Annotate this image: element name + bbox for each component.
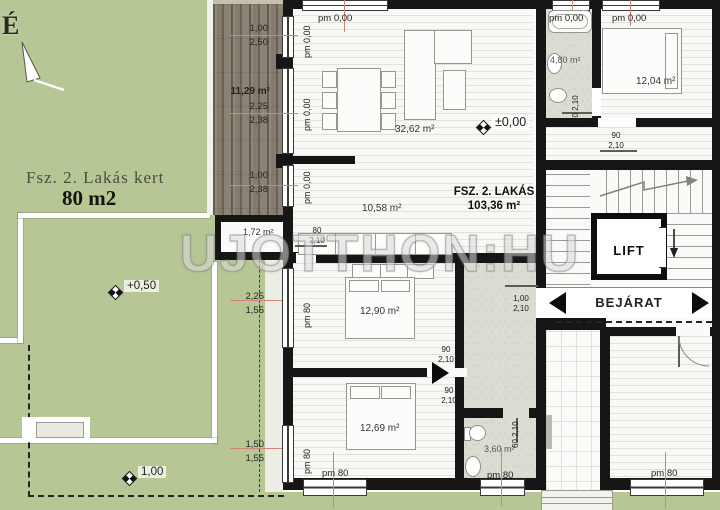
- door-opening: [536, 288, 546, 318]
- window: [282, 68, 294, 154]
- garden-fence: [18, 213, 210, 218]
- garden-planter: [22, 417, 90, 441]
- garden-level-lower: 1,00: [138, 466, 166, 478]
- window-sill-label: pm 80: [322, 468, 348, 479]
- room-area-label: 12,04 m²: [636, 76, 675, 88]
- coffee-table: [443, 70, 466, 110]
- door-size-label: 80 2,10: [304, 226, 330, 246]
- level-zero-label: ±0,00: [492, 115, 529, 129]
- dim-line: [665, 452, 666, 508]
- entrance-label: BEJÁRAT: [570, 295, 688, 311]
- toilet: [469, 425, 486, 441]
- window-sill-label: pm 0,00: [303, 20, 312, 58]
- door-size-label: 80 2,10: [572, 90, 580, 122]
- room-area-label: 12,69 m²: [360, 423, 399, 435]
- chair: [381, 113, 396, 130]
- door-size-label: 60 2,10: [512, 418, 520, 448]
- window: [602, 0, 660, 11]
- door-opening: [598, 118, 636, 127]
- dim-label: 1,00: [226, 23, 268, 34]
- wall: [600, 327, 610, 490]
- window-sill-label: pm 0,00: [612, 13, 646, 24]
- window-sill-label: pm 0,00: [303, 93, 312, 131]
- room-area-label: 12,90 m²: [360, 306, 399, 318]
- apartment-title: FSZ. 2. LAKÁS 103,36 m²: [448, 185, 540, 214]
- door-size-label: 90 2,10: [435, 386, 463, 406]
- lift-shaft: LIFT: [591, 213, 667, 280]
- door-size-label: 1,00 2,10: [508, 294, 534, 314]
- dining-table: [337, 68, 381, 132]
- dim-label: 2,38: [226, 184, 268, 195]
- window-sill-label: pm 80: [651, 468, 677, 479]
- chair: [322, 92, 337, 109]
- room-area-label: 10,58 m²: [362, 203, 401, 215]
- window: [282, 268, 294, 348]
- door-swing-arc: [678, 336, 710, 368]
- window-sill-label: pm 0,00: [303, 166, 312, 204]
- lift-label: LIFT: [597, 243, 661, 258]
- door-opening: [592, 88, 601, 116]
- lift-direction-arrow: [668, 228, 680, 260]
- bed: [346, 383, 416, 450]
- garden-area-label: 80 m2: [62, 186, 116, 211]
- opening-dashed-line: [556, 321, 712, 323]
- garden-level-upper: +0,50: [124, 280, 159, 292]
- chair: [381, 92, 396, 109]
- door-size-label: 90 2,10: [601, 131, 631, 151]
- dim-label: 2,25: [226, 101, 268, 112]
- room-area-label: 32,62 m²: [395, 124, 434, 136]
- entrance-steps: [541, 490, 613, 510]
- window-sill-label: pm 80: [487, 470, 513, 481]
- door-leaf: [505, 285, 538, 287]
- exit-corridor-floor: [546, 330, 600, 497]
- wall: [215, 215, 293, 222]
- wall: [536, 160, 720, 170]
- dim-label: 2,38: [226, 115, 268, 126]
- sofa: [434, 30, 472, 64]
- garden-fence: [212, 262, 217, 443]
- dim-label: 1,00: [226, 170, 268, 181]
- room-area-label: 1,72 m²: [243, 227, 274, 238]
- wall: [536, 0, 546, 490]
- window: [302, 0, 388, 11]
- terrace-lip: [213, 0, 290, 4]
- entrance-arrow-right: [692, 292, 709, 314]
- apartment-total-area: 103,36 m²: [448, 199, 540, 213]
- window: [303, 479, 367, 496]
- window-sill-label: pm 80: [303, 292, 312, 328]
- lift-door: [659, 227, 666, 268]
- window: [480, 479, 525, 496]
- door-opening: [676, 327, 710, 336]
- dim-label: 1,55: [222, 305, 264, 316]
- terrace-area-label: 11,29 m²: [220, 86, 270, 98]
- wall: [293, 156, 355, 164]
- room-area-label: 3,60 m²: [484, 444, 515, 455]
- level-marker: [122, 471, 138, 487]
- garden-fence: [18, 213, 23, 343]
- sofa: [404, 30, 436, 120]
- stair-direction-arrow: [598, 176, 708, 202]
- dim-line: [230, 35, 298, 36]
- wall: [712, 0, 720, 490]
- window: [282, 425, 294, 483]
- door-opening: [503, 408, 529, 418]
- floor-plan: Fsz. 2. Lakás kert 80 m2 É +0,50 1,00 2,…: [0, 0, 720, 510]
- sink: [465, 456, 481, 477]
- toilet: [549, 88, 567, 103]
- level-marker: [108, 285, 124, 301]
- window-sill-label: pm 80: [303, 438, 312, 474]
- window: [282, 165, 294, 207]
- garden-planter-inner: [36, 422, 84, 438]
- apartment-name: FSZ. 2. LAKÁS: [448, 185, 540, 199]
- dim-line: [333, 452, 334, 508]
- window-sill-label: pm 0,00: [318, 13, 352, 24]
- chair: [381, 71, 396, 88]
- north-arrow-icon: [14, 38, 74, 98]
- room-area-label: 4,80 m²: [550, 55, 581, 66]
- door-size-label: 90 2,10: [432, 345, 460, 365]
- north-label: É: [2, 10, 19, 41]
- dim-label: 1,55: [222, 453, 264, 464]
- property-line: [28, 495, 284, 497]
- chair: [322, 71, 337, 88]
- chair: [322, 113, 337, 130]
- entrance-arrow-left: [549, 292, 566, 314]
- window-sill-label: pm 0,00: [549, 13, 583, 24]
- window: [282, 16, 294, 58]
- wall: [215, 252, 303, 260]
- wall: [536, 318, 606, 330]
- dim-label: 2,50: [226, 37, 268, 48]
- door-swing-arrow: [432, 362, 449, 384]
- window: [630, 479, 704, 496]
- handrail: [546, 415, 552, 449]
- dim-line: [230, 113, 298, 114]
